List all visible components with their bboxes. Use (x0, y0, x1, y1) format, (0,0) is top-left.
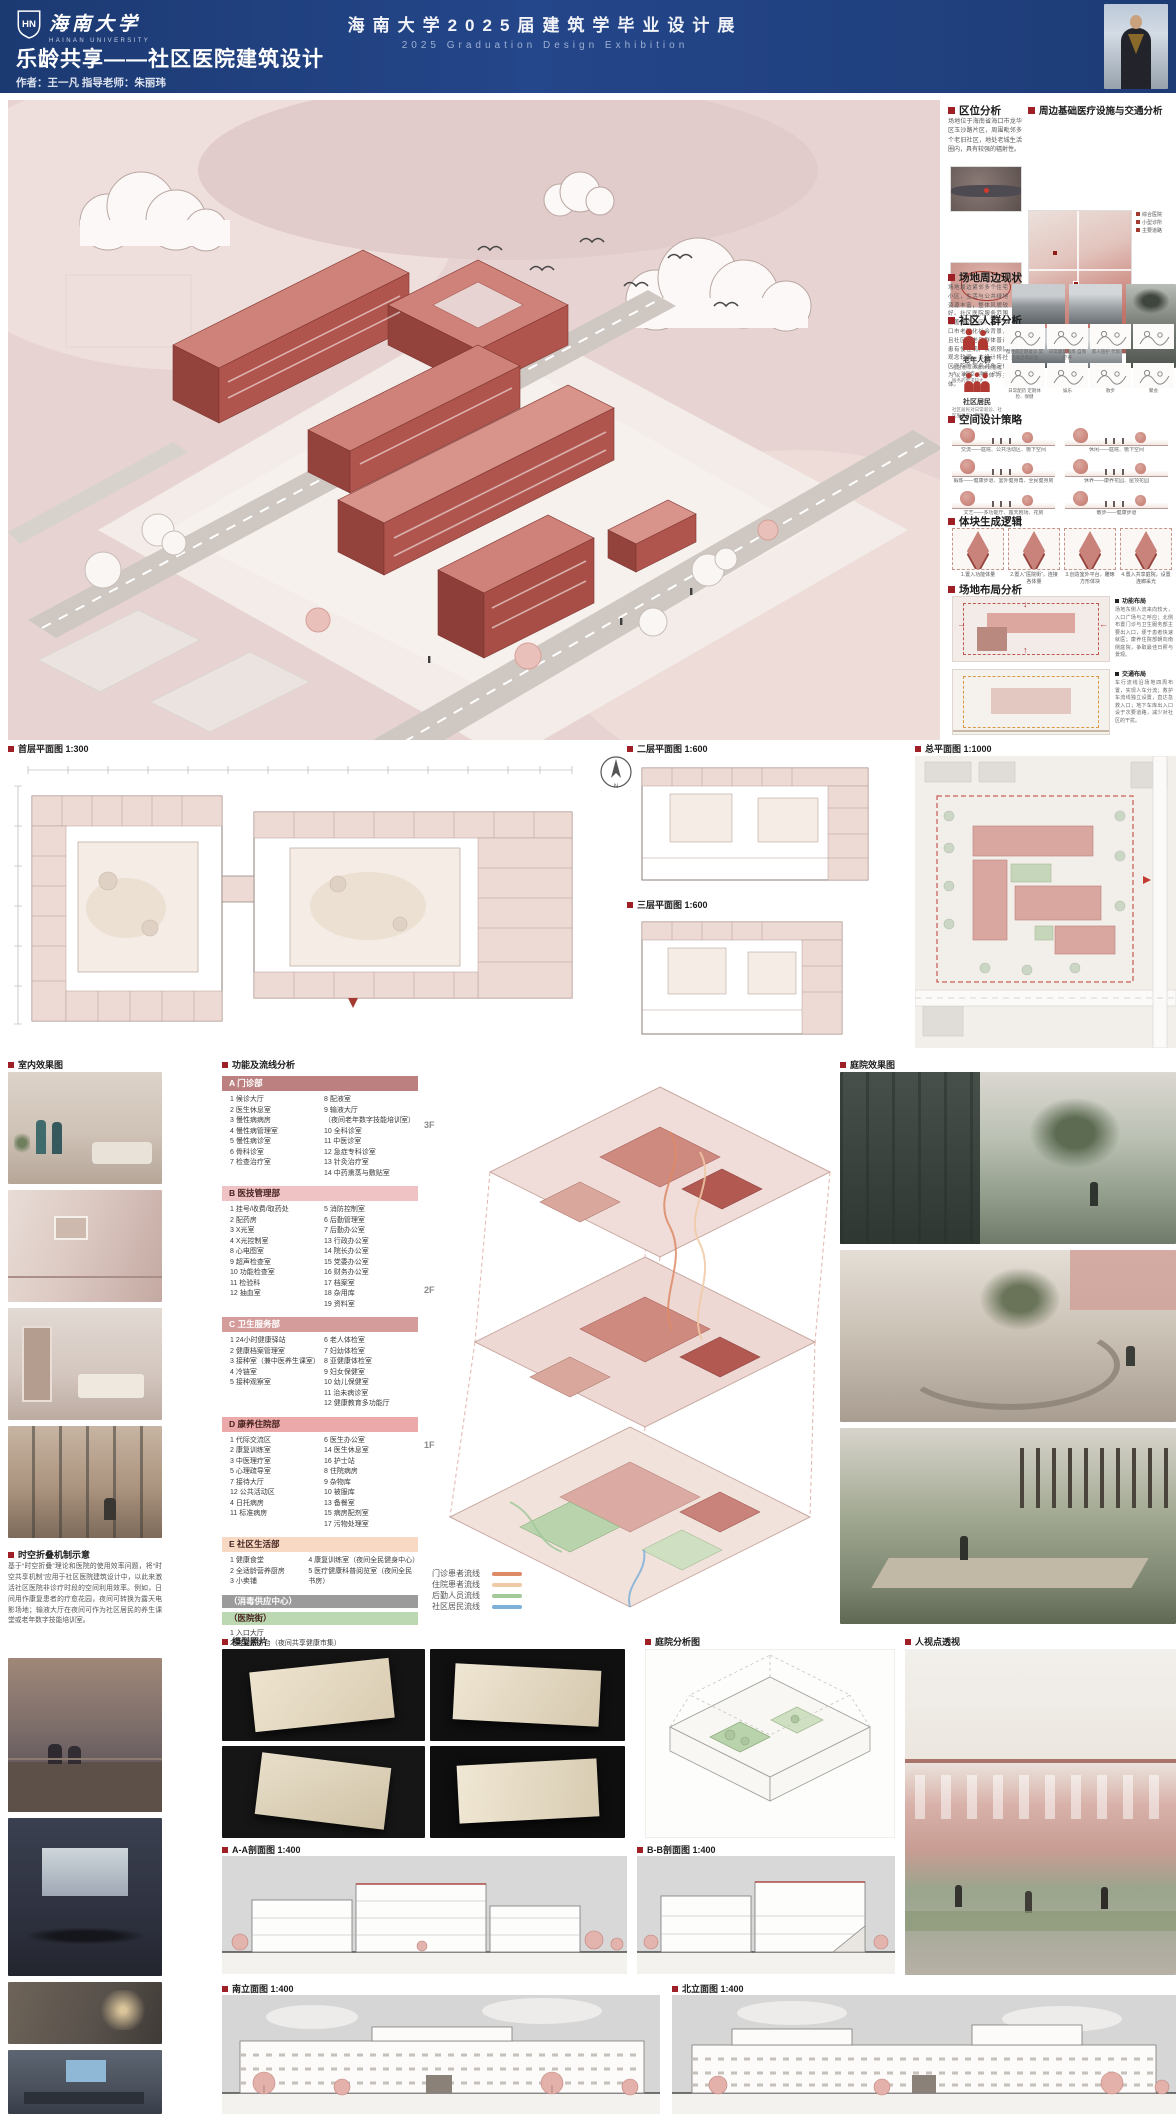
room-item: 13 备餐室 (324, 1499, 418, 1510)
room-item: 7 接待大厅 (230, 1478, 324, 1489)
railing (8, 1758, 162, 1760)
section-title-text: 周边基础医疗设施与交通分析 (1039, 103, 1163, 117)
model-card (249, 1658, 395, 1732)
first-floor-plan-label: 首层平面图 1:300 (8, 742, 89, 755)
layout-subtitle: 功能布局 (1115, 596, 1173, 605)
group-d-col2: 6 医生办公室14 医生休息室16 护士站8 住院病房9 杂物库10 被服库13… (324, 1436, 418, 1531)
massing-diagram (1008, 528, 1060, 570)
vignette-caption: 融入社区生活 (1133, 349, 1174, 361)
university-logo: HN 海南大学 HAINAN UNIVERSITY (16, 9, 150, 44)
section-bb-drawing (637, 1856, 895, 1974)
vignette-sketch (1133, 324, 1174, 349)
exploded-axonometric-diagram (420, 1072, 835, 1622)
poster: HN 海南大学 HAINAN UNIVERSITY 海南大学2025届建筑学毕业… (0, 0, 1176, 2118)
location-text: 场地位于海南省海口市龙华区玉沙路片区，周围毗邻多个老旧社区，地处老城生活圈内，具… (948, 118, 1022, 155)
layout-body: 场地东侧人流来向较大，入口广场与之呼应；北侧布置门诊与卫生服务部主要出入口，便于… (1115, 607, 1173, 660)
vignette-sketch (1090, 363, 1131, 388)
room-item: 4 慢性病管理室 (230, 1127, 324, 1138)
legend-item: 综合医院 (1136, 210, 1176, 218)
room-item: 9 超声检查室 (230, 1258, 324, 1269)
building-footprint (977, 627, 1007, 651)
group-label: 老年人群 (952, 355, 1002, 365)
interior-photo-hall2 (8, 1982, 162, 2044)
plan-label-text: 三层平面图 1:600 (637, 898, 708, 911)
audience (28, 1928, 142, 1944)
interior-renders-label: 室内效果图 (8, 1058, 63, 1071)
lawn (905, 1911, 1176, 1931)
seated-people (68, 1746, 81, 1764)
section-title-text: 区位分析 (959, 103, 1001, 118)
group-e-col1: 1 健康食堂2 全适龄营养厨房3 小卖铺 (222, 1556, 308, 1588)
interior-photo-lobby (8, 1072, 162, 1184)
group-e-col2: 4 康复训练室（夜间全民健身中心）5 医疗健康科普阅览室（夜间全民书房） (308, 1556, 418, 1588)
vignette-caption: 娱乐 (1047, 388, 1088, 400)
group-a-col2: 8 配液室9 输液大厅（夜间老年数字技能培训室）10 全科诊室11 中医诊室12… (324, 1095, 418, 1179)
legend-swatch (1136, 220, 1140, 224)
people-vignettes: 慢性病定期复诊 常见病咨询诊治 日常康复锻炼 自我疗养 家人陪护 代际交流 融入… (1004, 324, 1176, 400)
room-item: 8 配液室 (324, 1095, 418, 1106)
strategy-diagrams: 交流——庭院、公共活动区、檐下空间 休闲——庭院、檐下空间 锻炼——健康步道、室… (952, 426, 1174, 520)
street-band: （医院街） (222, 1612, 418, 1625)
window-band (915, 1775, 1165, 1819)
room-item: 14 中药熏蒸与敷贴室 (324, 1169, 418, 1180)
legend-swatch (1136, 212, 1140, 216)
vignette-caption: 散步 (1090, 388, 1131, 400)
flow-legend-label: 社区居民流线 (432, 1601, 486, 1612)
room-item: 11 检验科 (230, 1279, 324, 1290)
map-road (1029, 269, 1132, 271)
room-item: （夜间老年数字技能培训室） (324, 1116, 418, 1127)
section-title-medical: 周边基础医疗设施与交通分析 (1028, 103, 1163, 117)
flow-legend-row: 后勤人员流线 (432, 1590, 522, 1601)
room-item: 12 急症专科诊室 (324, 1148, 418, 1159)
group-b-col2: 5 消防控制室6 后勤管理室7 后勤办公室13 行政办公室14 院长办公室15 … (324, 1205, 418, 1310)
strategy-item: 交流——庭院、公共活动区、檐下空间 (952, 426, 1055, 453)
room-item: 12 公共活动区 (230, 1488, 324, 1499)
svg-text:N: N (614, 784, 618, 790)
south-elevation-label: 南立面图 1:400 (222, 1982, 294, 1995)
drawing-label-text: B-B剖面图 1:400 (647, 1843, 716, 1856)
room-item: 19 资料室 (324, 1300, 418, 1311)
massing-volume (967, 531, 989, 570)
svg-text:HN: HN (22, 19, 36, 30)
building-footprint (991, 688, 1071, 714)
courtyard-tree (1030, 1098, 1120, 1168)
floor-label-2f: 2F (424, 1285, 435, 1295)
strategy-sketch (952, 426, 1055, 446)
first-floor-plan-drawing (8, 756, 596, 1048)
room-item: 3 慢性病病房 (230, 1116, 324, 1127)
courtyard-tree (980, 1268, 1060, 1330)
function-lists: A 门诊部 1 候诊大厅2 医生休息室3 慢性病病房4 慢性病管理室5 慢性病诊… (222, 1076, 418, 1650)
pergola (1020, 1448, 1176, 1508)
room-item: 17 污物处理室 (324, 1520, 418, 1531)
layout-text-block: 交通布局 车行流线沿场地四周布置，实现人车分流；救护车流线独立设置，直达急救入口… (1115, 669, 1173, 735)
exhibition-title: 海南大学2025届建筑学毕业设计展 (320, 11, 770, 36)
concept-title-text: 时空折叠机制示意 (18, 1548, 90, 1561)
massing-volume (1079, 531, 1101, 570)
second-floor-plan-label: 二层平面图 1:600 (627, 742, 708, 755)
interior-photo-ward (8, 1308, 162, 1420)
room-item: 18 杂用库 (324, 1289, 418, 1300)
vignette-caption: 慢性病定期复诊 常见病咨询诊治 (1004, 349, 1045, 361)
floor-line (8, 1276, 162, 1278)
elderly-people-icon (959, 328, 995, 350)
vignette: 家人陪护 代际交流 (1090, 324, 1131, 361)
warm-light (98, 1990, 148, 2030)
strategy-sketch (952, 457, 1055, 477)
logo-text: 海南大学 HAINAN UNIVERSITY (49, 9, 150, 44)
vignette-caption: 日常配药 定期体检、保健 (1004, 388, 1045, 400)
room-item: 3 X光室 (230, 1226, 324, 1237)
location-map-1 (950, 166, 1022, 212)
vignette: 娱乐 (1047, 363, 1088, 400)
flow-legend-label: 住院患者流线 (432, 1579, 486, 1590)
strategy-caption: 休养——康养花园、屋顶花园 (1065, 478, 1168, 484)
author-photo (1104, 4, 1168, 89)
curved-bench (900, 1320, 1120, 1410)
section-title-massing: 体块生成逻辑 (948, 514, 1022, 529)
room-item: 2 康复训练室 (230, 1446, 324, 1457)
seated-figure (104, 1498, 116, 1520)
section-bb-label: B-B剖面图 1:400 (637, 1843, 716, 1856)
group-b-col1: 1 挂号/收费/取药处2 配药房3 X光室4 X光控制室8 心电图室9 超声检查… (222, 1205, 324, 1310)
courtyard-render-1 (840, 1072, 1176, 1244)
nurse-figure (36, 1120, 46, 1154)
room-item: 3 小卖铺 (230, 1577, 308, 1588)
author-line: 作者：王一凡 指导老师：朱丽玮 (16, 75, 166, 90)
room-item: 7 检查治疗室 (230, 1158, 324, 1169)
section-title-text: 场地布局分析 (959, 582, 1022, 597)
room-item: 4 X光控制室 (230, 1237, 324, 1248)
dusk-terrace-photo (8, 1658, 162, 1812)
exhibition-subtitle: 2025 Graduation Design Exhibition (320, 40, 770, 51)
flow-legend-swatch (492, 1594, 522, 1598)
strategy-item: 休闲——庭院、檐下空间 (1065, 426, 1168, 453)
room-item: 9 妇女保健室 (324, 1368, 418, 1379)
render-label-text: 室内效果图 (18, 1058, 63, 1071)
medical-map-legend: 综合医院小型诊所主要道路 (1136, 210, 1176, 234)
third-floor-plan-drawing (630, 912, 880, 1046)
vignette-sketch (1047, 324, 1088, 349)
flow-legend-swatch (492, 1572, 522, 1576)
layout-body: 车行流线沿场地四周布置，实现人车分流；救护车流线独立设置，直达急救入口；地下车库… (1115, 680, 1173, 725)
section-title-text: 体块生成逻辑 (959, 514, 1022, 529)
legend-label: 综合医院 (1142, 211, 1162, 218)
main-perspective-rendering (8, 100, 940, 740)
massing-steps: 1.置入功能体量 2.置入“医院街”，连接各体量 3.创造室外平台，雕琢方形体块… (952, 528, 1172, 585)
room-item: 3 接种室（兼中医养生课室） (230, 1357, 324, 1368)
photo-face (1130, 15, 1142, 29)
pedestrian (1101, 1887, 1108, 1909)
room-item: 6 后勤管理室 (324, 1216, 418, 1227)
room-item: 10 全科诊室 (324, 1127, 418, 1138)
massing-diagram (952, 528, 1004, 570)
room-item: 4 冷链室 (230, 1368, 324, 1379)
strategy-caption: 休闲——庭院、檐下空间 (1065, 447, 1168, 453)
legend-item: 主要道路 (1136, 226, 1176, 234)
layout-subtitle-text: 交通布局 (1122, 669, 1146, 678)
plant (14, 1132, 30, 1154)
room-item: 3 中医理疗室 (230, 1457, 324, 1468)
strategy-item: 散步——健康步道 (1065, 489, 1168, 516)
model-card (255, 1752, 392, 1829)
night-screen-photo (8, 1818, 162, 1976)
pedestrian (1025, 1891, 1032, 1913)
vignette: 融入社区生活 (1133, 324, 1174, 361)
second-floor-plan-drawing (630, 758, 880, 892)
room-item: 11 标准病房 (230, 1509, 324, 1520)
vignette-sketch (1047, 363, 1088, 388)
seated-people (48, 1744, 62, 1764)
section-title-location: 区位分析 (948, 103, 1001, 118)
group-a-band: A 门诊部 (222, 1076, 418, 1091)
section-title-text: 场地周边现状 (959, 270, 1022, 285)
flow-legend-label: 门诊患者流线 (432, 1568, 486, 1579)
vignette-caption: 日常康复锻炼 自我疗养 (1047, 349, 1088, 361)
vignette-sketch (1133, 363, 1174, 388)
road-line (953, 730, 1110, 732)
vignette-sketch (1004, 363, 1045, 388)
room-item: 14 院长办公室 (324, 1247, 418, 1258)
residents-icon (959, 372, 995, 392)
function-group-e: E 社区生活部 1 健康食堂2 全适龄营养厨房3 小卖铺 4 康复训练室（夜间全… (222, 1537, 418, 1588)
function-analysis-title: 功能及流线分析 (222, 1058, 295, 1071)
legend-label: 主要道路 (1142, 227, 1162, 234)
layout-text-block: 功能布局 场地东侧人流来向较大，入口广场与之呼应；北侧布置门诊与卫生服务部主要出… (1115, 596, 1173, 662)
wall-art (54, 1216, 88, 1240)
render-label-text: 庭院效果图 (850, 1058, 895, 1071)
render-label-text: 庭院分析图 (655, 1635, 700, 1648)
room-item: 10 幼儿保健室 (324, 1378, 418, 1389)
vignette: 聚会 (1133, 363, 1174, 400)
strategy-caption: 交流——庭院、公共活动区、檐下空间 (952, 447, 1055, 453)
layout-analysis: ↓→←↑ 功能布局 场地东侧人流来向较大，入口广场与之呼应；北侧布置门诊与卫生服… (952, 596, 1176, 742)
strategy-item: 文艺——多功能厅、露天剧场、花房 (952, 489, 1055, 516)
plan-label-text: 总平面图 1:1000 (925, 742, 992, 755)
room-item: 8 亚健康体检室 (324, 1357, 418, 1368)
room-item: 11 中医诊室 (324, 1137, 418, 1148)
room-item: 5 消防控制室 (324, 1205, 418, 1216)
section-title-site: 场地周边现状 (948, 270, 1022, 285)
massing-caption: 4.置入共享庭院，设置连廊采光 (1120, 572, 1172, 585)
massing-volume (1023, 531, 1045, 570)
courtyard-render-3 (840, 1428, 1176, 1624)
group-label: 社区居民 (952, 397, 1002, 407)
section-aa-drawing (222, 1856, 627, 1974)
massing-diagram (1120, 528, 1172, 570)
pedestrian (955, 1885, 962, 1907)
room-item: 2 配药房 (230, 1216, 324, 1227)
room-item: 8 心电图室 (230, 1247, 324, 1258)
function-group-b: B 医技管理部 1 挂号/收费/取药处2 配药房3 X光室4 X光控制室8 心电… (222, 1186, 418, 1310)
map-clinic-dot (1053, 251, 1057, 255)
model-photo-3 (222, 1746, 425, 1838)
master-plan-label: 总平面图 1:1000 (915, 742, 992, 755)
room-item: 6 老人体检室 (324, 1336, 418, 1347)
vignette-sketch (1004, 324, 1045, 349)
header: HN 海南大学 HAINAN UNIVERSITY 海南大学2025届建筑学毕业… (0, 0, 1176, 93)
third-floor-plan-label: 三层平面图 1:600 (627, 898, 708, 911)
massing-diagram (1064, 528, 1116, 570)
exhibition-title-block: 海南大学2025届建筑学毕业设计展 2025 Graduation Design… (320, 11, 770, 51)
room-item: 1 24小时健康驿站 (230, 1336, 324, 1347)
section-title-strategy: 空间设计策略 (948, 412, 1022, 427)
strategy-sketch (1065, 489, 1168, 509)
room-item: 1 候诊大厅 (230, 1095, 324, 1106)
function-group-c: C 卫生服务部 1 24小时健康驿站2 健康档案管理室3 接种室（兼中医养生课室… (222, 1317, 418, 1410)
section-aa-label: A-A剖面图 1:400 (222, 1843, 301, 1856)
walking-figure (1090, 1182, 1098, 1206)
floor-label-1f: 1F (424, 1440, 435, 1450)
render-label-text: 人视点透视 (915, 1635, 960, 1648)
group-d-band: D 康养住院部 (222, 1417, 418, 1432)
room-item: 7 妇幼体检室 (324, 1347, 418, 1358)
room-item: 13 行政办公室 (324, 1237, 418, 1248)
seated-figure (1126, 1346, 1135, 1366)
room-item: 14 医生休息室 (324, 1446, 418, 1457)
building-edge (905, 1759, 1176, 1763)
room-item: 15 党委办公室 (324, 1258, 418, 1269)
layout-map: ↓→←↑ (952, 596, 1110, 662)
drawing-label-text: A-A剖面图 1:400 (232, 1843, 301, 1856)
map-marker (984, 188, 989, 193)
room-item: 2 全适龄营养厨房 (230, 1567, 308, 1578)
courtyard-analysis-label: 庭院分析图 (645, 1635, 700, 1648)
room-item: 5 慢性病诊室 (230, 1137, 324, 1148)
university-name: 海南大学 (49, 9, 150, 36)
vignette-caption: 家人陪护 代际交流 (1090, 349, 1131, 361)
room-item: 16 护士站 (324, 1457, 418, 1468)
floor-plate-2f (475, 1257, 815, 1427)
function-group-a: A 门诊部 1 候诊大厅2 医生休息室3 慢性病病房4 慢性病管理室5 慢性病诊… (222, 1076, 418, 1179)
model-photo-4 (430, 1746, 625, 1838)
room-item: 4 日托病房 (230, 1499, 324, 1510)
vignette: 日常配药 定期体检、保健 (1004, 363, 1045, 400)
strategy-item: 锻炼——健康步道、室外健身角、全民健身房 (952, 457, 1055, 484)
logo-shield-icon: HN (16, 9, 42, 39)
bed (78, 1374, 144, 1398)
vignette: 慢性病定期复诊 常见病咨询诊治 (1004, 324, 1045, 361)
strategy-caption: 锻炼——健康步道、室外健身角、全民健身房 (952, 478, 1055, 484)
section-title-layout: 场地布局分析 (948, 582, 1022, 597)
room-item: 2 医生休息室 (230, 1106, 324, 1117)
north-elevation-label: 北立面图 1:400 (672, 1982, 744, 1995)
model-photos-label: 模型照片 (222, 1635, 268, 1648)
tv-screen (66, 2060, 106, 2082)
interior-photo-corridor (8, 1190, 162, 1302)
group-c-col2: 6 老人体检室7 妇幼体检室8 亚健康体检室9 妇女保健室10 幼儿保健室11 … (324, 1336, 418, 1410)
room-item: 10 功能检查室 (230, 1268, 324, 1279)
waiting-room-tv-photo (8, 2050, 162, 2114)
massing-step: 4.置入共享庭院，设置连廊采光 (1120, 528, 1172, 585)
flow-legend-row: 社区居民流线 (432, 1601, 522, 1612)
flow-legend-swatch (492, 1605, 522, 1609)
room-item: 1 代际交流区 (230, 1436, 324, 1447)
room-item: 12 抽血室 (230, 1289, 324, 1300)
room-item: 5 医疗健康科普阅览室（夜间全民书房） (308, 1567, 418, 1588)
room-item: 7 后勤办公室 (324, 1226, 418, 1237)
courtyard-renders-label: 庭院效果图 (840, 1058, 895, 1071)
courtyard-render-2 (840, 1250, 1176, 1422)
vignette-sketch (1090, 324, 1131, 349)
south-elevation-drawing (222, 1995, 660, 2114)
function-group-d: D 康养住院部 1 代际交流区2 康复训练室3 中医理疗室5 心理疏导室7 接待… (222, 1417, 418, 1531)
strategy-sketch (1065, 457, 1168, 477)
room-item: 1 健康食堂 (230, 1556, 308, 1567)
door-frame (22, 1326, 52, 1402)
group-e-band: E 社区生活部 (222, 1537, 418, 1552)
room-item: 11 治未病诊室 (324, 1389, 418, 1400)
north-elevation-drawing (672, 1995, 1176, 2114)
room-item: 15 病房配剂室 (324, 1509, 418, 1520)
concept-title: 时空折叠机制示意 (8, 1548, 90, 1561)
room-item: 10 被服库 (324, 1488, 418, 1499)
plan-label-text: 首层平面图 1:300 (18, 742, 89, 755)
room-item: 1 挂号/收费/取药处 (230, 1205, 324, 1216)
plan-label-text: 二层平面图 1:600 (637, 742, 708, 755)
room-item: 9 输液大厅 (324, 1106, 418, 1117)
model-photo-2 (430, 1649, 625, 1741)
massing-step: 2.置入“医院街”，连接各体量 (1008, 528, 1060, 585)
layout-block-function: ↓→←↑ 功能布局 场地东侧人流来向较大，入口广场与之呼应；北侧布置门诊与卫生服… (952, 596, 1176, 662)
group-b-band: B 医技管理部 (222, 1186, 418, 1201)
seats (24, 2092, 144, 2104)
vignette-caption: 聚会 (1133, 388, 1174, 400)
interior-photo-glass-hall (8, 1426, 162, 1538)
room-item: 6 医生办公室 (324, 1436, 418, 1447)
room-item: 12 健康教育多功能厅 (324, 1399, 418, 1410)
strategy-item: 休养——康养花园、屋顶花园 (1065, 457, 1168, 484)
group-a-col1: 1 候诊大厅2 医生休息室3 慢性病病房4 慢性病管理室5 慢性病诊室6 骨科诊… (222, 1095, 324, 1179)
glass-mullions (8, 1426, 162, 1538)
model-card (457, 1758, 600, 1823)
room-item: 13 针灸治疗室 (324, 1158, 418, 1169)
drawing-label-text: 北立面图 1:400 (682, 1982, 744, 1995)
project-title: 乐龄共享——社区医院建筑设计 (16, 43, 324, 73)
vignette: 日常康复锻炼 自我疗养 (1047, 324, 1088, 361)
courtyard-analysis-drawing (645, 1649, 895, 1838)
glass-facade (840, 1072, 980, 1244)
section-title-text: 空间设计策略 (959, 412, 1022, 427)
strategy-sketch (1065, 426, 1168, 446)
layout-map (952, 669, 1110, 735)
render-label-text: 模型照片 (232, 1635, 268, 1648)
disinfect-band: （消毒供应中心） (222, 1595, 418, 1608)
massing-step: 1.置入功能体量 (952, 528, 1004, 585)
eye-level-render (905, 1649, 1176, 1975)
building-backdrop (1070, 1250, 1176, 1310)
model-card (453, 1663, 602, 1727)
group-c-band: C 卫生服务部 (222, 1317, 418, 1332)
floor-label-3f: 3F (424, 1120, 435, 1130)
drawing-label-text: 南立面图 1:400 (232, 1982, 294, 1995)
movie-screen (42, 1848, 128, 1896)
group-d-col1: 1 代际交流区2 康复训练室3 中医理疗室5 心理疏导室7 接待大厅12 公共活… (222, 1436, 324, 1531)
room-item: 8 住院病房 (324, 1467, 418, 1478)
layout-subtitle: 交通布局 (1115, 669, 1173, 678)
sofa (92, 1142, 152, 1164)
legend-item: 小型诊所 (1136, 218, 1176, 226)
walking-figure (960, 1536, 968, 1560)
strategy-sketch (952, 489, 1055, 509)
massing-caption: 1.置入功能体量 (952, 572, 1004, 579)
group-c-col1: 1 24小时健康驿站2 健康档案管理室3 接种室（兼中医养生课室）4 冷链室5 … (222, 1336, 324, 1410)
flow-legend-row: 住院患者流线 (432, 1579, 522, 1590)
massing-caption: 3.创造室外平台，雕琢方形体块 (1064, 572, 1116, 585)
room-item: 5 接种观察室 (230, 1378, 324, 1389)
strategy-caption: 散步——健康步道 (1065, 510, 1168, 516)
